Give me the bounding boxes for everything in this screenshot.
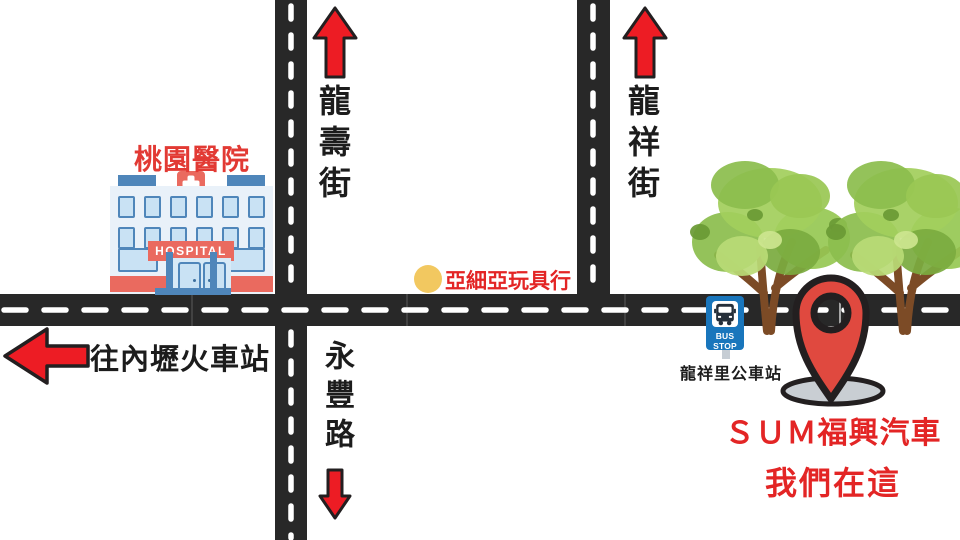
destination-name: ＳＵＭ福興汽車: [702, 408, 960, 452]
destination-label: ＳＵＭ福興汽車 我們在這: [702, 408, 960, 504]
destination-here-text: 我們在這: [702, 458, 960, 504]
map-canvas: HOSPITAL 桃園醫院 龍壽街 龍祥街 永豐路 往內壢火車站 亞細亞玩具行: [0, 0, 960, 540]
